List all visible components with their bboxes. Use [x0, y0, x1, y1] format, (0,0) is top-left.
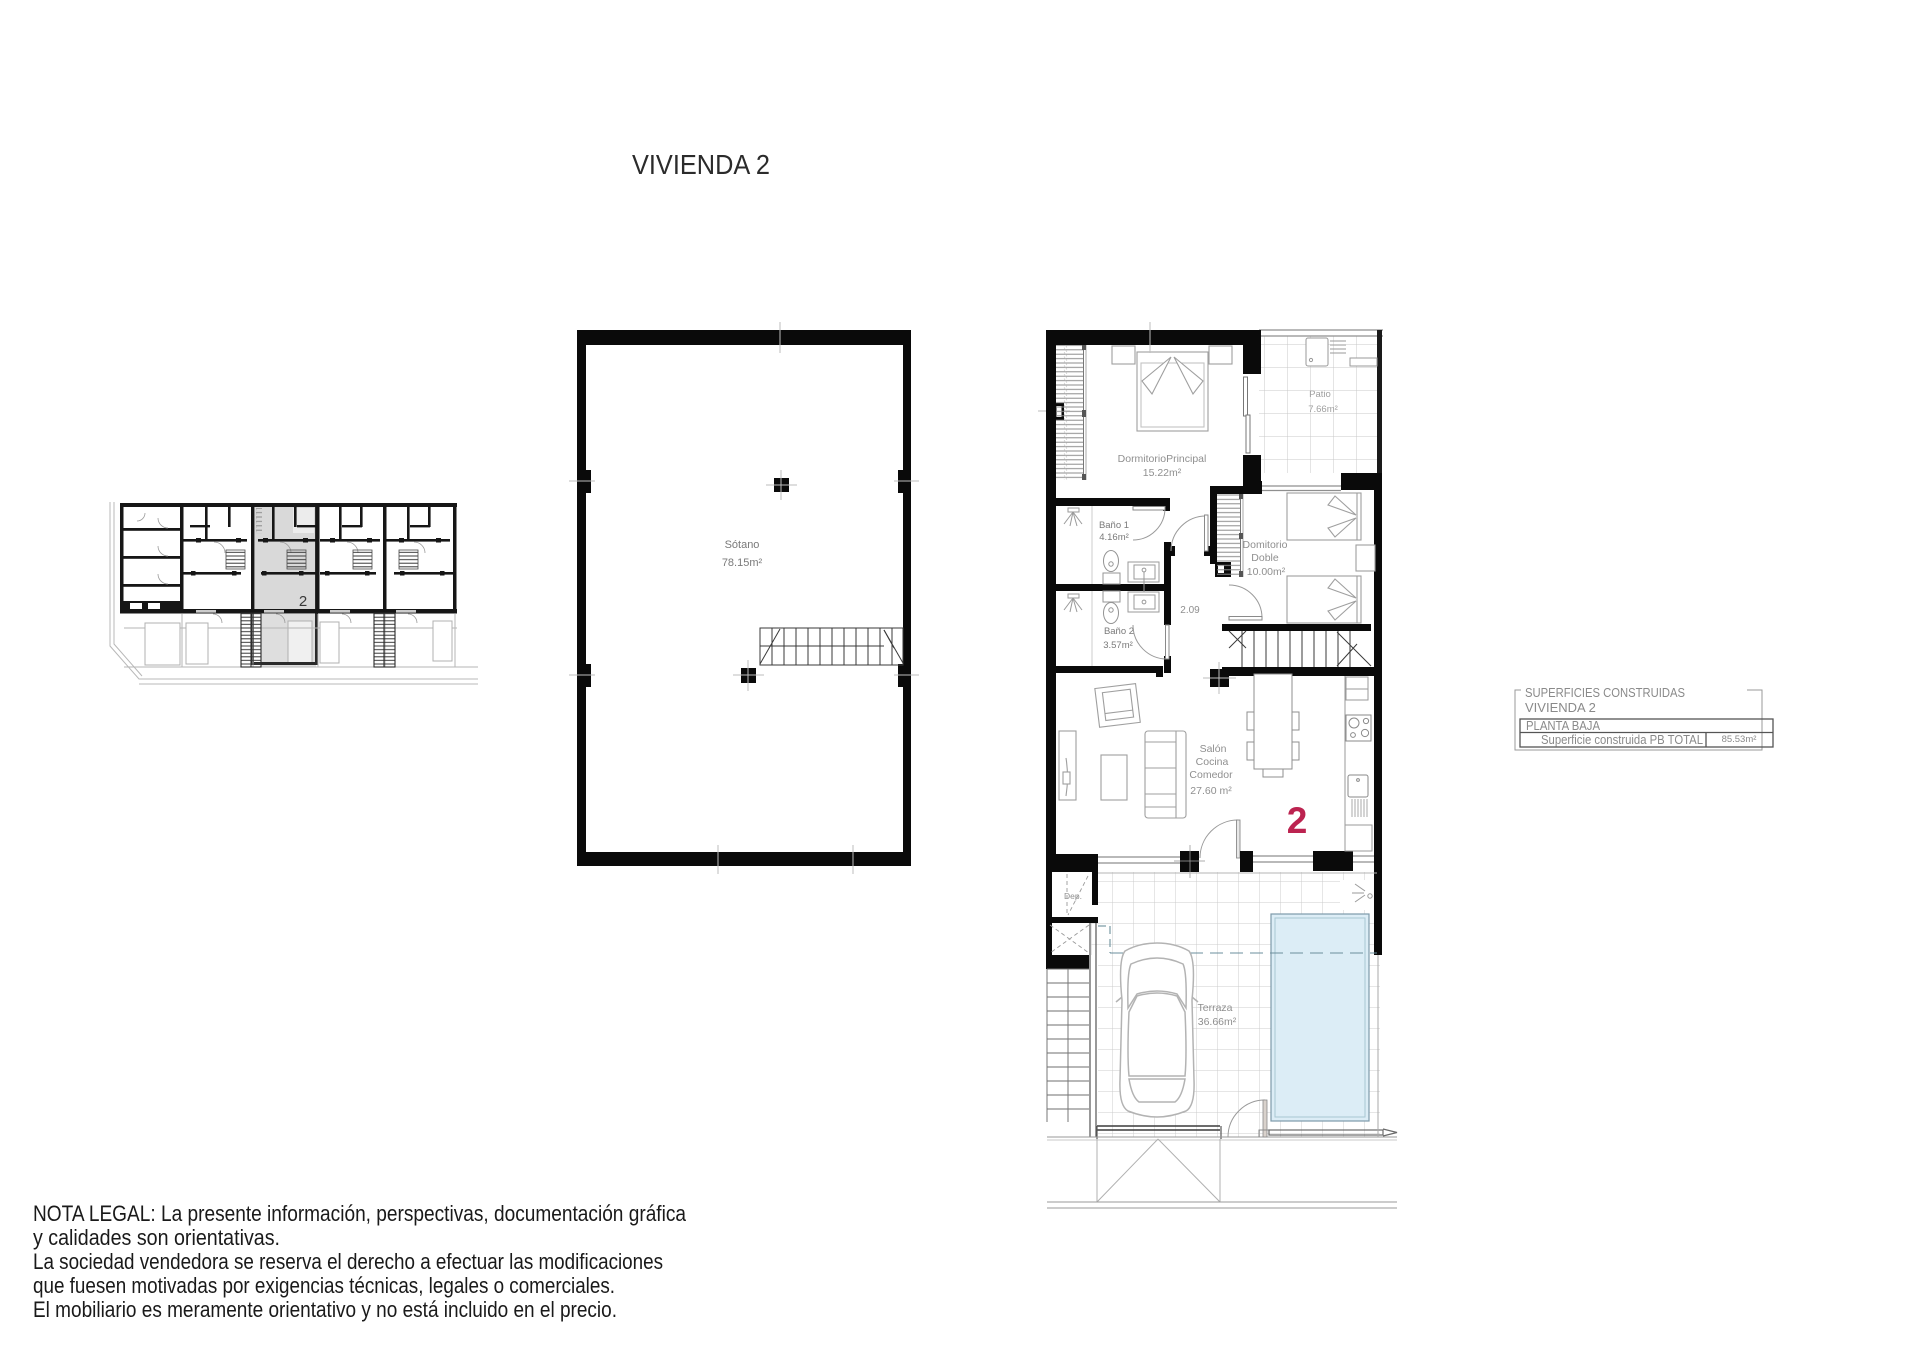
svg-text:VIVIENDA 2: VIVIENDA 2	[632, 149, 770, 180]
svg-text:15.22m²: 15.22m²	[1143, 467, 1182, 479]
svg-text:7.66m²: 7.66m²	[1308, 404, 1338, 415]
svg-text:10.00m²: 10.00m²	[1247, 566, 1286, 578]
svg-text:Baño 2: Baño 2	[1104, 626, 1134, 637]
svg-text:y calidades son orientativas.: y calidades son orientativas.	[33, 1225, 280, 1250]
svg-text:78.15m²: 78.15m²	[722, 557, 763, 569]
svg-text:SUPERFICIES CONSTRUIDAS: SUPERFICIES CONSTRUIDAS	[1525, 685, 1685, 700]
svg-text:36.66m²: 36.66m²	[1198, 1016, 1237, 1028]
svg-text:2.09: 2.09	[1180, 605, 1200, 616]
svg-text:VIVIENDA 2: VIVIENDA 2	[1525, 700, 1596, 715]
svg-text:Baño 1: Baño 1	[1099, 520, 1129, 531]
svg-text:Terraza: Terraza	[1197, 1002, 1232, 1014]
svg-text:Doble: Doble	[1251, 552, 1279, 564]
svg-text:Sótano: Sótano	[725, 539, 760, 551]
svg-text:El mobiliario es meramente ori: El mobiliario es meramente orientativo y…	[33, 1297, 617, 1322]
svg-text:85.53m²: 85.53m²	[1722, 734, 1757, 745]
svg-text:Superficie construida PB TOTAL: Superficie construida PB TOTAL	[1541, 732, 1703, 747]
svg-text:DormitorioPrincipal: DormitorioPrincipal	[1118, 453, 1207, 465]
svg-text:PLANTA BAJA: PLANTA BAJA	[1526, 718, 1600, 733]
svg-text:27.60 m²: 27.60 m²	[1190, 785, 1232, 797]
svg-text:Domitorio: Domitorio	[1243, 539, 1288, 551]
svg-text:4.16m²: 4.16m²	[1099, 532, 1129, 543]
svg-text:3.57m²: 3.57m²	[1103, 640, 1133, 651]
svg-text:Comedor: Comedor	[1189, 769, 1233, 781]
svg-text:2: 2	[1287, 800, 1308, 841]
svg-text:Cocina: Cocina	[1196, 756, 1229, 768]
svg-text:Salón: Salón	[1200, 743, 1227, 755]
svg-text:NOTA LEGAL: La presente inform: NOTA LEGAL: La presente información, per…	[33, 1201, 686, 1226]
svg-text:2: 2	[299, 593, 307, 610]
svg-text:Patio: Patio	[1309, 389, 1331, 400]
svg-text:que fuesen motivadas por exige: que fuesen motivadas por exigencias técn…	[33, 1273, 615, 1298]
svg-text:La sociedad vendedora se reser: La sociedad vendedora se reserva el dere…	[33, 1249, 663, 1274]
